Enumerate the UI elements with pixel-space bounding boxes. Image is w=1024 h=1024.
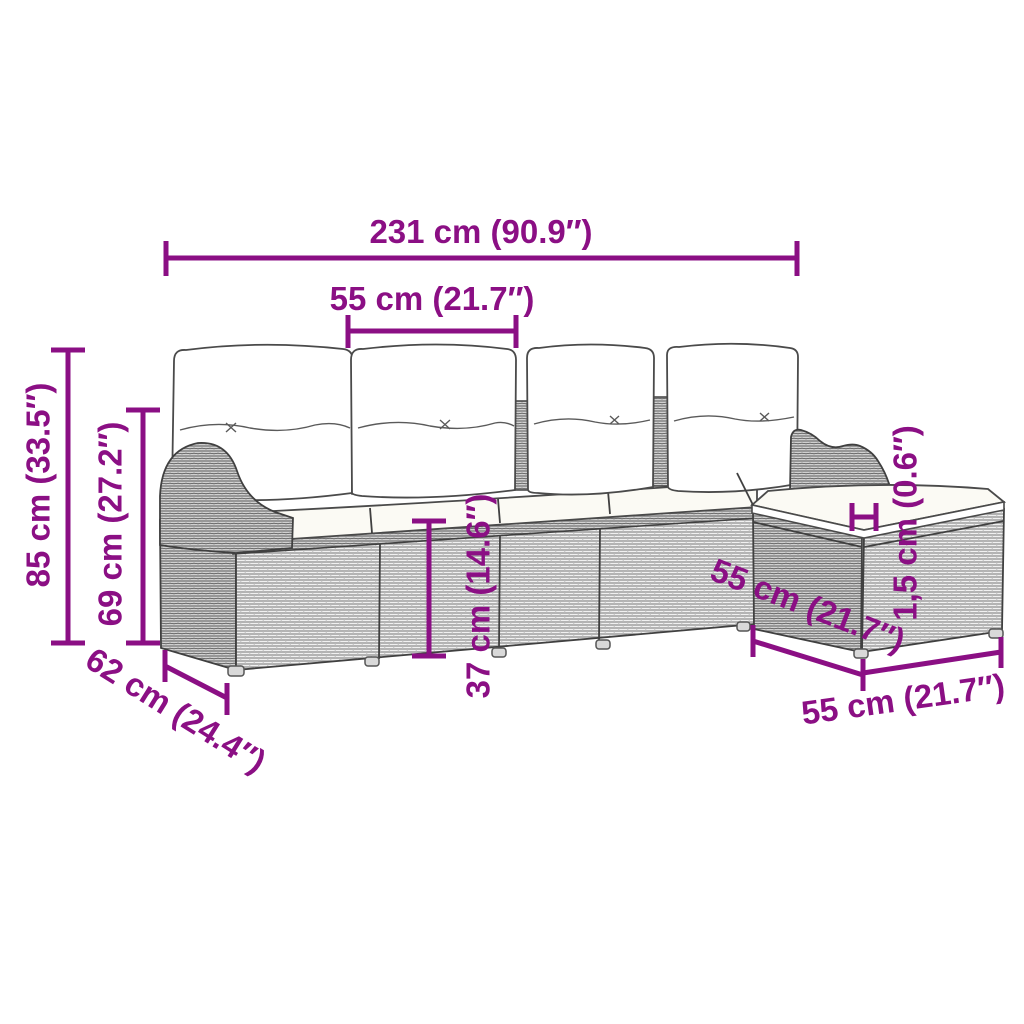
dimension-diagram: 231 cm (90.9″) 55 cm (21.7″) 85 cm (33.5… [0,0,1024,1024]
back-cushion-3 [527,345,654,495]
dim-ottoman-width: 55 cm (21.7″) [799,637,1007,732]
leg [365,657,379,666]
dim-seat-height-label: 37 cm (14.6″) [460,494,497,699]
leg [596,640,610,649]
dim-backrest-height: 69 cm (27.2″) [92,410,161,643]
leg [854,649,868,658]
sofa-dimension-drawing: 231 cm (90.9″) 55 cm (21.7″) 85 cm (33.5… [0,0,1024,1024]
dim-overall-height: 85 cm (33.5″) [20,350,86,643]
dim-overall-height-label: 85 cm (33.5″) [20,383,57,588]
leg [989,629,1003,638]
dim-module-width-label: 55 cm (21.7″) [330,280,535,317]
leg [737,622,750,631]
dim-backrest-height-label: 69 cm (27.2″) [92,422,129,627]
dim-overall-width: 231 cm (90.9″) [166,213,797,276]
dim-cushion-thickness-label: 1,5 cm (0.6″) [887,425,924,621]
dim-module-width: 55 cm (21.7″) [330,280,535,348]
back-cushion-2 [351,345,516,498]
leg [228,666,244,676]
dim-ottoman-width-label: 55 cm (21.7″) [799,666,1007,731]
dim-overall-width-label: 231 cm (90.9″) [369,213,592,250]
back-cushions [172,344,798,500]
